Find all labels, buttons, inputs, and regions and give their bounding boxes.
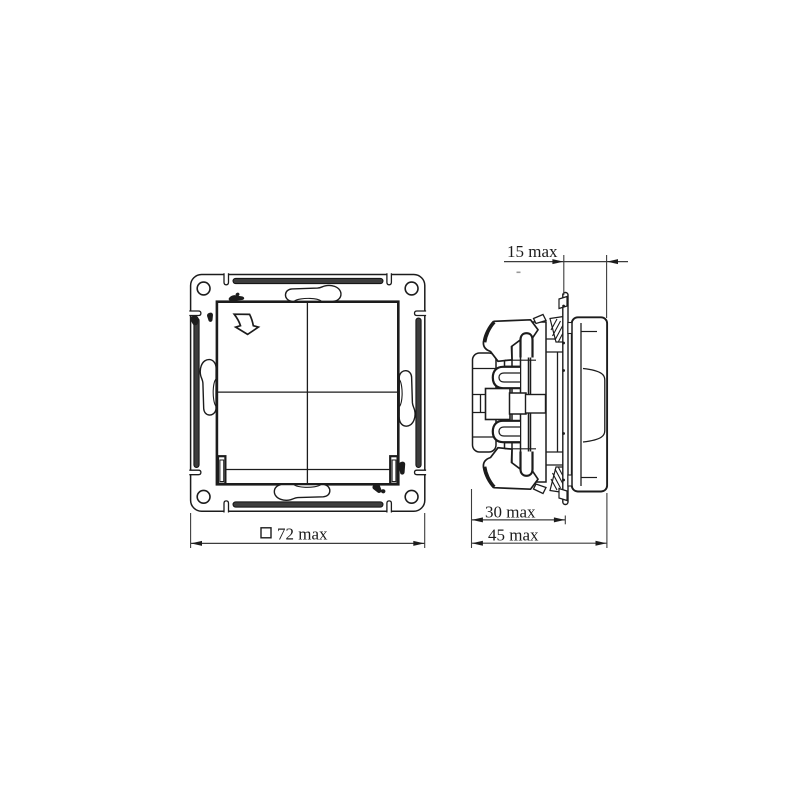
svg-text:15 max: 15 max <box>507 242 558 261</box>
svg-text:45 max: 45 max <box>488 526 539 545</box>
svg-text:30 max: 30 max <box>485 503 536 522</box>
svg-text:72 max: 72 max <box>277 524 328 543</box>
